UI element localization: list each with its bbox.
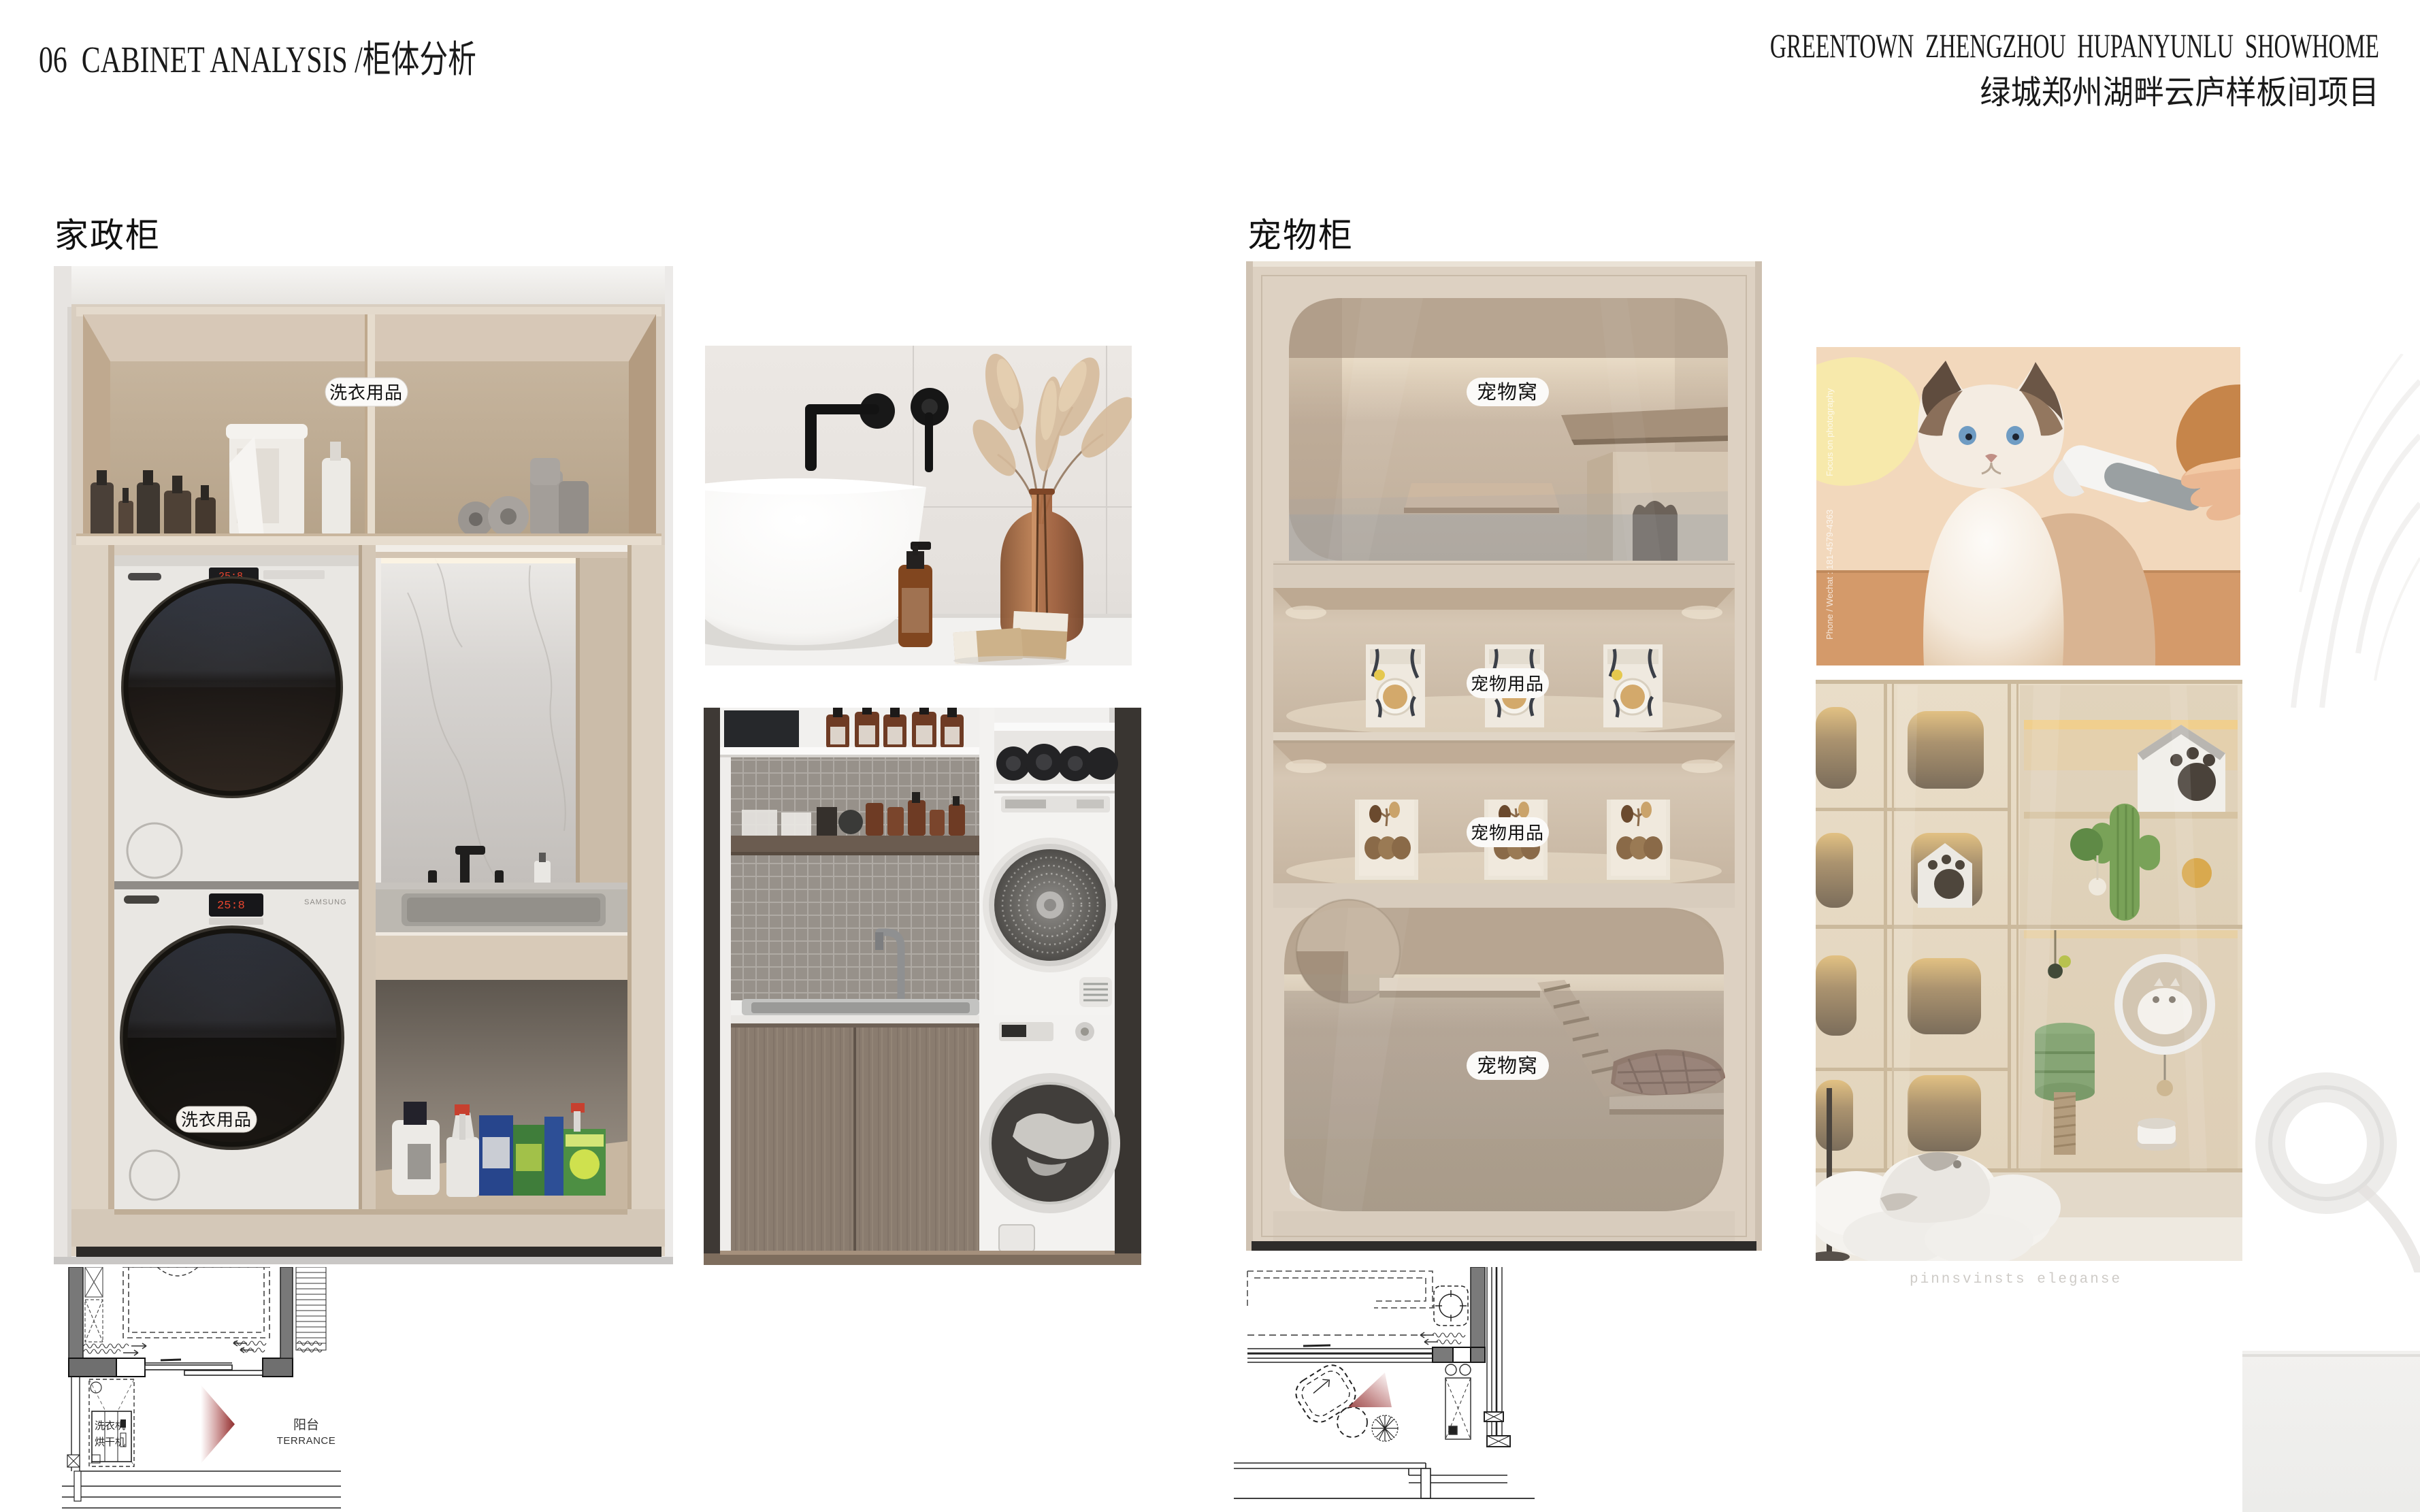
svg-text:洗衣用品: 洗衣用品	[181, 1111, 252, 1130]
svg-text:Focus on photography: Focus on photography	[1825, 388, 1835, 476]
svg-text:TERRANCE: TERRANCE	[277, 1435, 336, 1447]
svg-text:SAMSUNG: SAMSUNG	[304, 898, 347, 906]
svg-text:宠物用品: 宠物用品	[1471, 674, 1544, 694]
svg-text:阳台: 阳台	[293, 1417, 319, 1432]
svg-text:宠物窝: 宠物窝	[1477, 381, 1538, 404]
svg-text:宠物用品: 宠物用品	[1471, 823, 1544, 843]
svg-text:洗衣用品: 洗衣用品	[329, 382, 403, 403]
svg-text:宠物窝: 宠物窝	[1477, 1055, 1538, 1077]
svg-text:25:8: 25:8	[217, 900, 245, 913]
svg-text:Phone / Wechat : 181-4579-4363: Phone / Wechat : 181-4579-4363	[1825, 510, 1835, 640]
